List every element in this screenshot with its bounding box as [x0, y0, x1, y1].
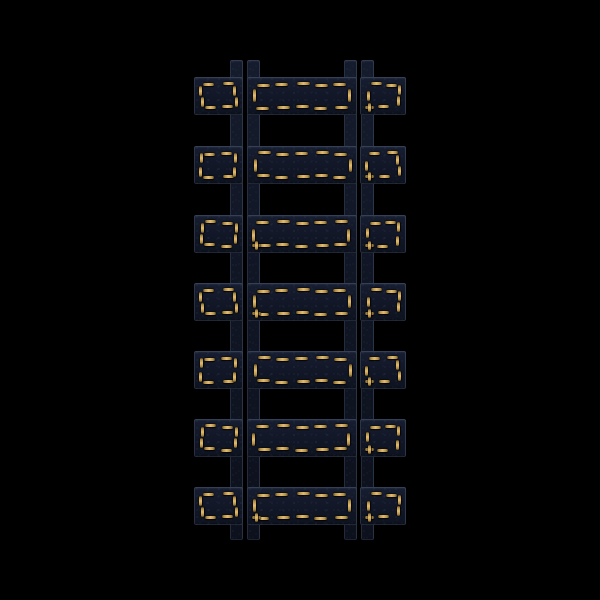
tie-right-tab	[360, 487, 406, 525]
stitch-dash	[233, 372, 236, 382]
stitch-dash	[235, 507, 238, 517]
tie-right-tab	[360, 146, 406, 184]
stitch-dash	[200, 153, 203, 163]
stitch-dash	[335, 220, 348, 223]
stitch-dash	[387, 151, 398, 154]
stitch-dash	[221, 245, 232, 248]
stitch-dash	[334, 358, 347, 361]
stitch-dash	[297, 288, 310, 291]
stitch-dash	[253, 295, 256, 308]
stitch-dash	[366, 432, 369, 442]
stitch-dash	[369, 152, 380, 155]
stitch-dash	[295, 449, 308, 452]
stitch-dash	[277, 106, 290, 109]
stitch-dash	[254, 364, 257, 377]
stitch-dash	[256, 221, 269, 224]
stitch-dash	[386, 84, 397, 87]
tie-middle-bar	[247, 419, 357, 457]
stitch-dash	[200, 438, 203, 448]
stitch-dash	[223, 492, 234, 495]
denim-art-viewport	[0, 0, 600, 600]
stitch-dash	[396, 360, 399, 370]
stitch-dash	[277, 516, 290, 519]
stitch-dash	[233, 167, 236, 177]
stitch-dash	[398, 291, 401, 301]
stitch-dash	[397, 426, 400, 436]
stitch-dash	[204, 358, 215, 361]
stitch-dash	[385, 425, 396, 428]
stitch-dash	[377, 449, 388, 452]
stitch-dash	[234, 234, 237, 244]
stitch-dash	[386, 494, 397, 497]
stitch-dash	[333, 176, 346, 179]
stitch-dash	[258, 356, 271, 359]
stitch-dash	[222, 105, 233, 108]
stitch-dash	[295, 245, 308, 248]
stitch-dash	[275, 176, 288, 179]
stitch-dash	[203, 83, 214, 86]
stitch-dash	[200, 358, 203, 368]
tie-middle-bar	[247, 215, 357, 253]
stitch-dash	[335, 516, 348, 519]
stitch-dash	[387, 356, 398, 359]
stitch-dash	[349, 364, 352, 377]
stitch-dash	[297, 380, 310, 383]
stitch-dash	[233, 86, 236, 96]
stitch-dash	[253, 89, 256, 102]
stitch-cross	[255, 241, 258, 250]
stitch-dash	[297, 175, 310, 178]
stitch-dash	[296, 105, 309, 108]
stitch-dash	[256, 425, 269, 428]
stitch-dash	[200, 234, 203, 244]
stitch-dash	[201, 303, 204, 313]
stitch-dash	[315, 84, 328, 87]
stitch-dash	[367, 91, 370, 101]
stitch-dash	[234, 358, 237, 368]
stitch-dash	[275, 289, 288, 292]
stitch-dash	[397, 222, 400, 232]
stitch-dash	[205, 424, 216, 427]
stitch-dash	[203, 176, 214, 179]
stitch-cross	[255, 513, 258, 522]
stitch-dash	[221, 152, 232, 155]
stitch-dash	[201, 97, 204, 107]
stitch-dash	[205, 220, 216, 223]
stitch-dash	[276, 153, 289, 156]
stitch-dash	[257, 174, 270, 177]
stitch-dash	[379, 175, 390, 178]
stitch-dash	[277, 220, 290, 223]
stitch-dash	[296, 515, 309, 518]
stitch-dash	[199, 292, 202, 302]
stitch-dash	[378, 515, 389, 518]
stitch-dash	[315, 494, 328, 497]
stitch-dash	[398, 371, 401, 381]
stitch-dash	[258, 151, 271, 154]
stitch-cross	[368, 241, 371, 250]
stitch-dash	[276, 243, 289, 246]
stitch-dash	[205, 106, 216, 109]
stitch-dash	[367, 297, 370, 307]
stitch-dash	[367, 501, 370, 511]
stitch-dash	[257, 290, 270, 293]
stitch-dash	[295, 152, 308, 155]
stitch-dash	[397, 96, 400, 106]
stitch-dash	[315, 174, 328, 177]
stitch-dash	[199, 167, 202, 177]
stitch-dash	[398, 166, 401, 176]
stitch-dash	[276, 447, 289, 450]
tie-left-tab	[194, 351, 243, 389]
stitch-dash	[371, 82, 382, 85]
stitch-dash	[253, 499, 256, 512]
stitch-dash	[398, 85, 401, 95]
stitch-dash	[334, 243, 347, 246]
tie-middle-bar	[247, 77, 357, 115]
tie-left-tab	[194, 215, 243, 253]
tie-left-tab	[194, 77, 243, 115]
stitch-dash	[335, 312, 348, 315]
stitch-dash	[379, 380, 390, 383]
tie-left-tab	[194, 283, 243, 321]
stitch-dash	[233, 292, 236, 302]
stitch-dash	[256, 107, 269, 110]
stitch-dash	[370, 426, 381, 429]
stitch-dash	[277, 312, 290, 315]
stitch-cross	[368, 445, 371, 454]
stitch-dash	[386, 290, 397, 293]
stitch-dash	[199, 86, 202, 96]
tie-middle-bar	[247, 351, 357, 389]
stitch-dash	[371, 288, 382, 291]
stitch-dash	[223, 288, 234, 291]
stitch-dash	[316, 244, 329, 247]
stitch-dash	[396, 155, 399, 165]
stitch-dash	[397, 302, 400, 312]
stitch-dash	[347, 229, 350, 242]
stitch-dash	[378, 105, 389, 108]
stitch-dash	[235, 427, 238, 437]
stitch-dash	[316, 448, 329, 451]
stitch-dash	[314, 107, 327, 110]
stitch-dash	[366, 228, 369, 238]
stitch-dash	[377, 245, 388, 248]
tie-right-tab	[360, 351, 406, 389]
stitch-dash	[257, 84, 270, 87]
stitch-dash	[222, 426, 233, 429]
stitch-dash	[348, 89, 351, 102]
tie-right-tab	[360, 283, 406, 321]
stitch-dash	[316, 356, 329, 359]
stitch-dash	[234, 438, 237, 448]
tie-right-tab	[360, 77, 406, 115]
stitch-dash	[333, 381, 346, 384]
stitch-dash	[252, 229, 255, 242]
stitch-dash	[275, 381, 288, 384]
stitch-cross	[255, 309, 258, 318]
stitch-dash	[235, 303, 238, 313]
stitch-dash	[296, 222, 309, 225]
stitch-dash	[315, 379, 328, 382]
stitch-dash	[205, 516, 216, 519]
tie-left-tab	[194, 487, 243, 525]
tie-right-tab	[360, 419, 406, 457]
stitch-dash	[257, 494, 270, 497]
stitch-dash	[277, 424, 290, 427]
stitch-dash	[203, 493, 214, 496]
stitch-dash	[314, 425, 327, 428]
stitch-dash	[295, 357, 308, 360]
stitch-cross	[368, 513, 371, 522]
stitch-dash	[347, 433, 350, 446]
tie-left-tab	[194, 419, 243, 457]
stitch-dash	[203, 289, 214, 292]
stitch-dash	[365, 366, 368, 376]
stitch-dash	[201, 427, 204, 437]
stitch-dash	[334, 447, 347, 450]
tie-left-tab	[194, 146, 243, 184]
stitch-dash	[369, 357, 380, 360]
stitch-cross	[368, 172, 371, 181]
stitch-dash	[199, 496, 202, 506]
stitch-dash	[235, 223, 238, 233]
stitch-dash	[333, 83, 346, 86]
stitch-dash	[275, 493, 288, 496]
stitch-dash	[333, 289, 346, 292]
stitch-dash	[222, 222, 233, 225]
stitch-dash	[396, 440, 399, 450]
stitch-dash	[235, 97, 238, 107]
stitch-dash	[204, 447, 215, 450]
stitch-dash	[204, 153, 215, 156]
stitch-dash	[335, 424, 348, 427]
stitch-dash	[276, 358, 289, 361]
stitch-dash	[314, 517, 327, 520]
stitch-dash	[398, 495, 401, 505]
stitch-dash	[275, 83, 288, 86]
stitch-dash	[233, 496, 236, 506]
tie-middle-bar	[247, 283, 357, 321]
stitch-dash	[297, 492, 310, 495]
stitch-dash	[365, 161, 368, 171]
stitch-dash	[205, 312, 216, 315]
stitch-dash	[201, 223, 204, 233]
stitch-dash	[296, 426, 309, 429]
stitch-dash	[223, 82, 234, 85]
stitch-dash	[297, 82, 310, 85]
stitch-dash	[199, 372, 202, 382]
stitch-dash	[258, 448, 271, 451]
stitch-dash	[254, 159, 257, 172]
stitch-dash	[221, 449, 232, 452]
stitch-dash	[348, 295, 351, 308]
stitch-dash	[334, 153, 347, 156]
stitch-dash	[335, 106, 348, 109]
stitch-dash	[349, 159, 352, 172]
stitch-dash	[203, 381, 214, 384]
stitch-dash	[204, 243, 215, 246]
stitch-dash	[257, 379, 270, 382]
stitch-dash	[333, 493, 346, 496]
stitch-dash	[371, 492, 382, 495]
stitch-dash	[370, 222, 381, 225]
stitch-cross	[368, 103, 371, 112]
stitch-dash	[314, 313, 327, 316]
stitch-dash	[397, 506, 400, 516]
denim-railroad-track	[0, 0, 600, 600]
stitch-dash	[348, 499, 351, 512]
stitch-dash	[222, 311, 233, 314]
stitch-dash	[221, 357, 232, 360]
stitch-dash	[378, 311, 389, 314]
tie-middle-bar	[247, 146, 357, 184]
stitch-cross	[368, 309, 371, 318]
stitch-dash	[222, 515, 233, 518]
stitch-dash	[385, 221, 396, 224]
stitch-dash	[396, 236, 399, 246]
stitch-dash	[296, 311, 309, 314]
stitch-dash	[201, 507, 204, 517]
stitch-dash	[316, 151, 329, 154]
stitch-cross	[368, 377, 371, 386]
stitch-dash	[315, 290, 328, 293]
stitch-dash	[252, 433, 255, 446]
stitch-dash	[314, 221, 327, 224]
stitch-dash	[234, 153, 237, 163]
tie-middle-bar	[247, 487, 357, 525]
tie-right-tab	[360, 215, 406, 253]
